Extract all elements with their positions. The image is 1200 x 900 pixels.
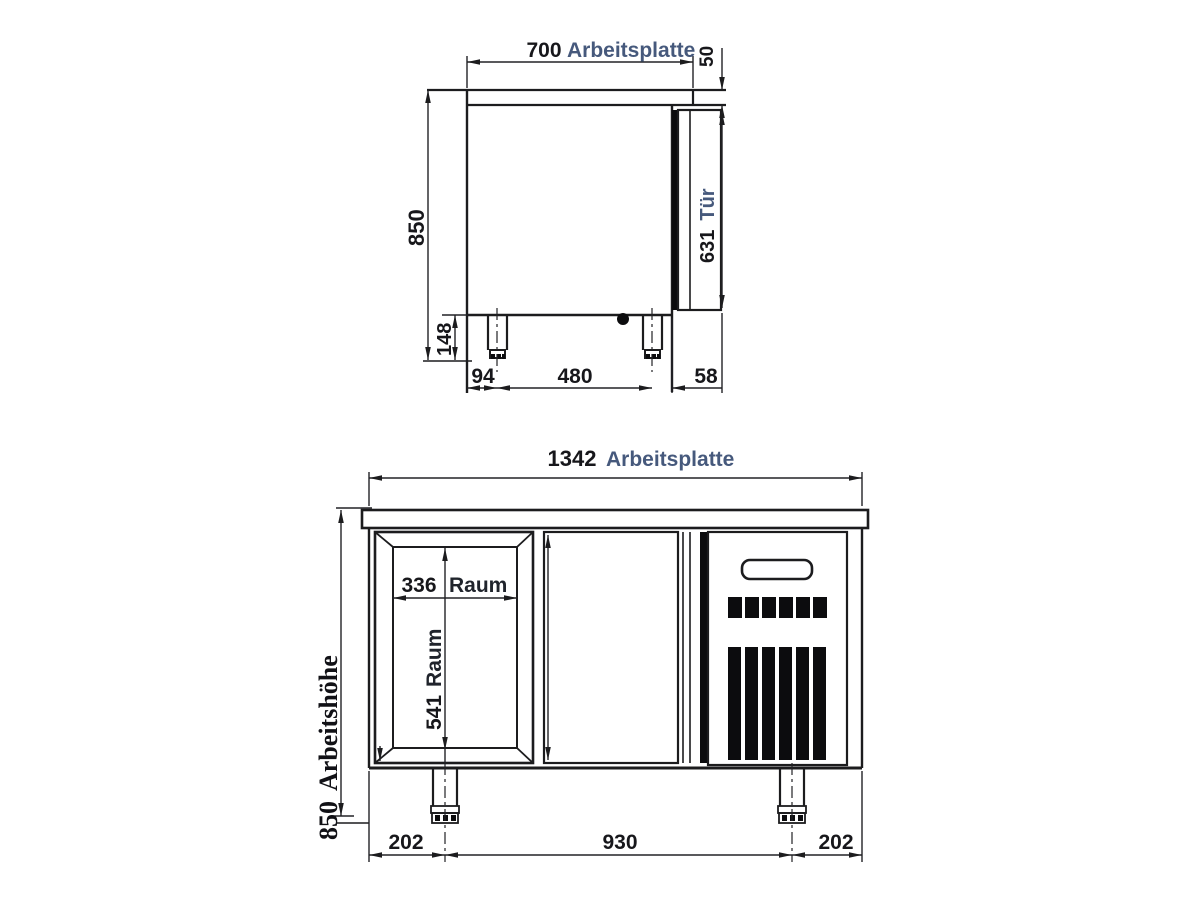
front-compartment-height-dim: 541Raum bbox=[423, 629, 446, 730]
technical-drawing-page: 700 Arbeitsplatte 50 850 631Tür 148 94 4… bbox=[0, 0, 1200, 900]
technical-drawing: 700 Arbeitsplatte 50 850 631Tür 148 94 4… bbox=[0, 0, 1200, 900]
front-machine-panel bbox=[708, 532, 847, 765]
side-leg-left bbox=[488, 308, 507, 372]
vent-grille bbox=[728, 647, 826, 760]
side-door-height-value: 631 bbox=[697, 230, 719, 263]
front-worktop-width-value: 1342 bbox=[548, 446, 597, 471]
side-worktop-label: Arbeitsplatte bbox=[567, 39, 695, 62]
side-rear-offset-value: 58 bbox=[694, 365, 718, 388]
front-leg-spacing-value: 930 bbox=[602, 831, 637, 854]
front-compartment-height-label: Raum bbox=[423, 629, 446, 687]
side-view: 700 Arbeitsplatte 50 850 631Tür 148 94 4… bbox=[404, 39, 726, 393]
front-compartment-height-value: 541 bbox=[423, 695, 446, 730]
side-leg-height-value: 148 bbox=[434, 323, 456, 356]
front-compartment-width-label: Raum bbox=[449, 574, 507, 597]
front-view: 1342 Arbeitsplatte 850Arbeitshöhe 336 Ra… bbox=[314, 446, 868, 862]
front-right-offset-value: 202 bbox=[818, 831, 853, 854]
front-left-offset-value: 202 bbox=[388, 831, 423, 854]
front-leg-right bbox=[778, 763, 806, 862]
front-leg-left bbox=[431, 763, 459, 862]
side-leg-spacing-value: 480 bbox=[557, 365, 592, 388]
front-working-height-label: Arbeitshöhe bbox=[314, 655, 343, 791]
front-worktop bbox=[362, 510, 868, 528]
door-hinge-bar bbox=[700, 532, 707, 763]
handle-slot bbox=[742, 560, 812, 579]
side-leg-right bbox=[643, 308, 662, 372]
front-working-height-dim: 850Arbeitshöhe bbox=[314, 655, 343, 840]
side-overall-height-value: 850 bbox=[404, 209, 429, 246]
front-worktop-label: Arbeitsplatte bbox=[606, 448, 734, 471]
side-door-label: Tür bbox=[697, 188, 719, 220]
side-worktop-width-value: 700 bbox=[526, 39, 561, 62]
side-worktop bbox=[427, 90, 726, 105]
front-framed-door bbox=[375, 532, 533, 763]
side-front-offset-value: 94 bbox=[471, 365, 495, 388]
front-working-height-value: 850 bbox=[314, 801, 343, 840]
side-door-height-dim: 631Tür bbox=[697, 188, 719, 263]
side-worktop-thickness-value: 50 bbox=[697, 46, 718, 67]
drain-dot bbox=[617, 313, 629, 325]
vent-holes bbox=[728, 597, 827, 618]
side-body bbox=[467, 90, 672, 393]
front-plain-door bbox=[544, 532, 707, 763]
front-compartment-width-value: 336 bbox=[401, 574, 436, 597]
